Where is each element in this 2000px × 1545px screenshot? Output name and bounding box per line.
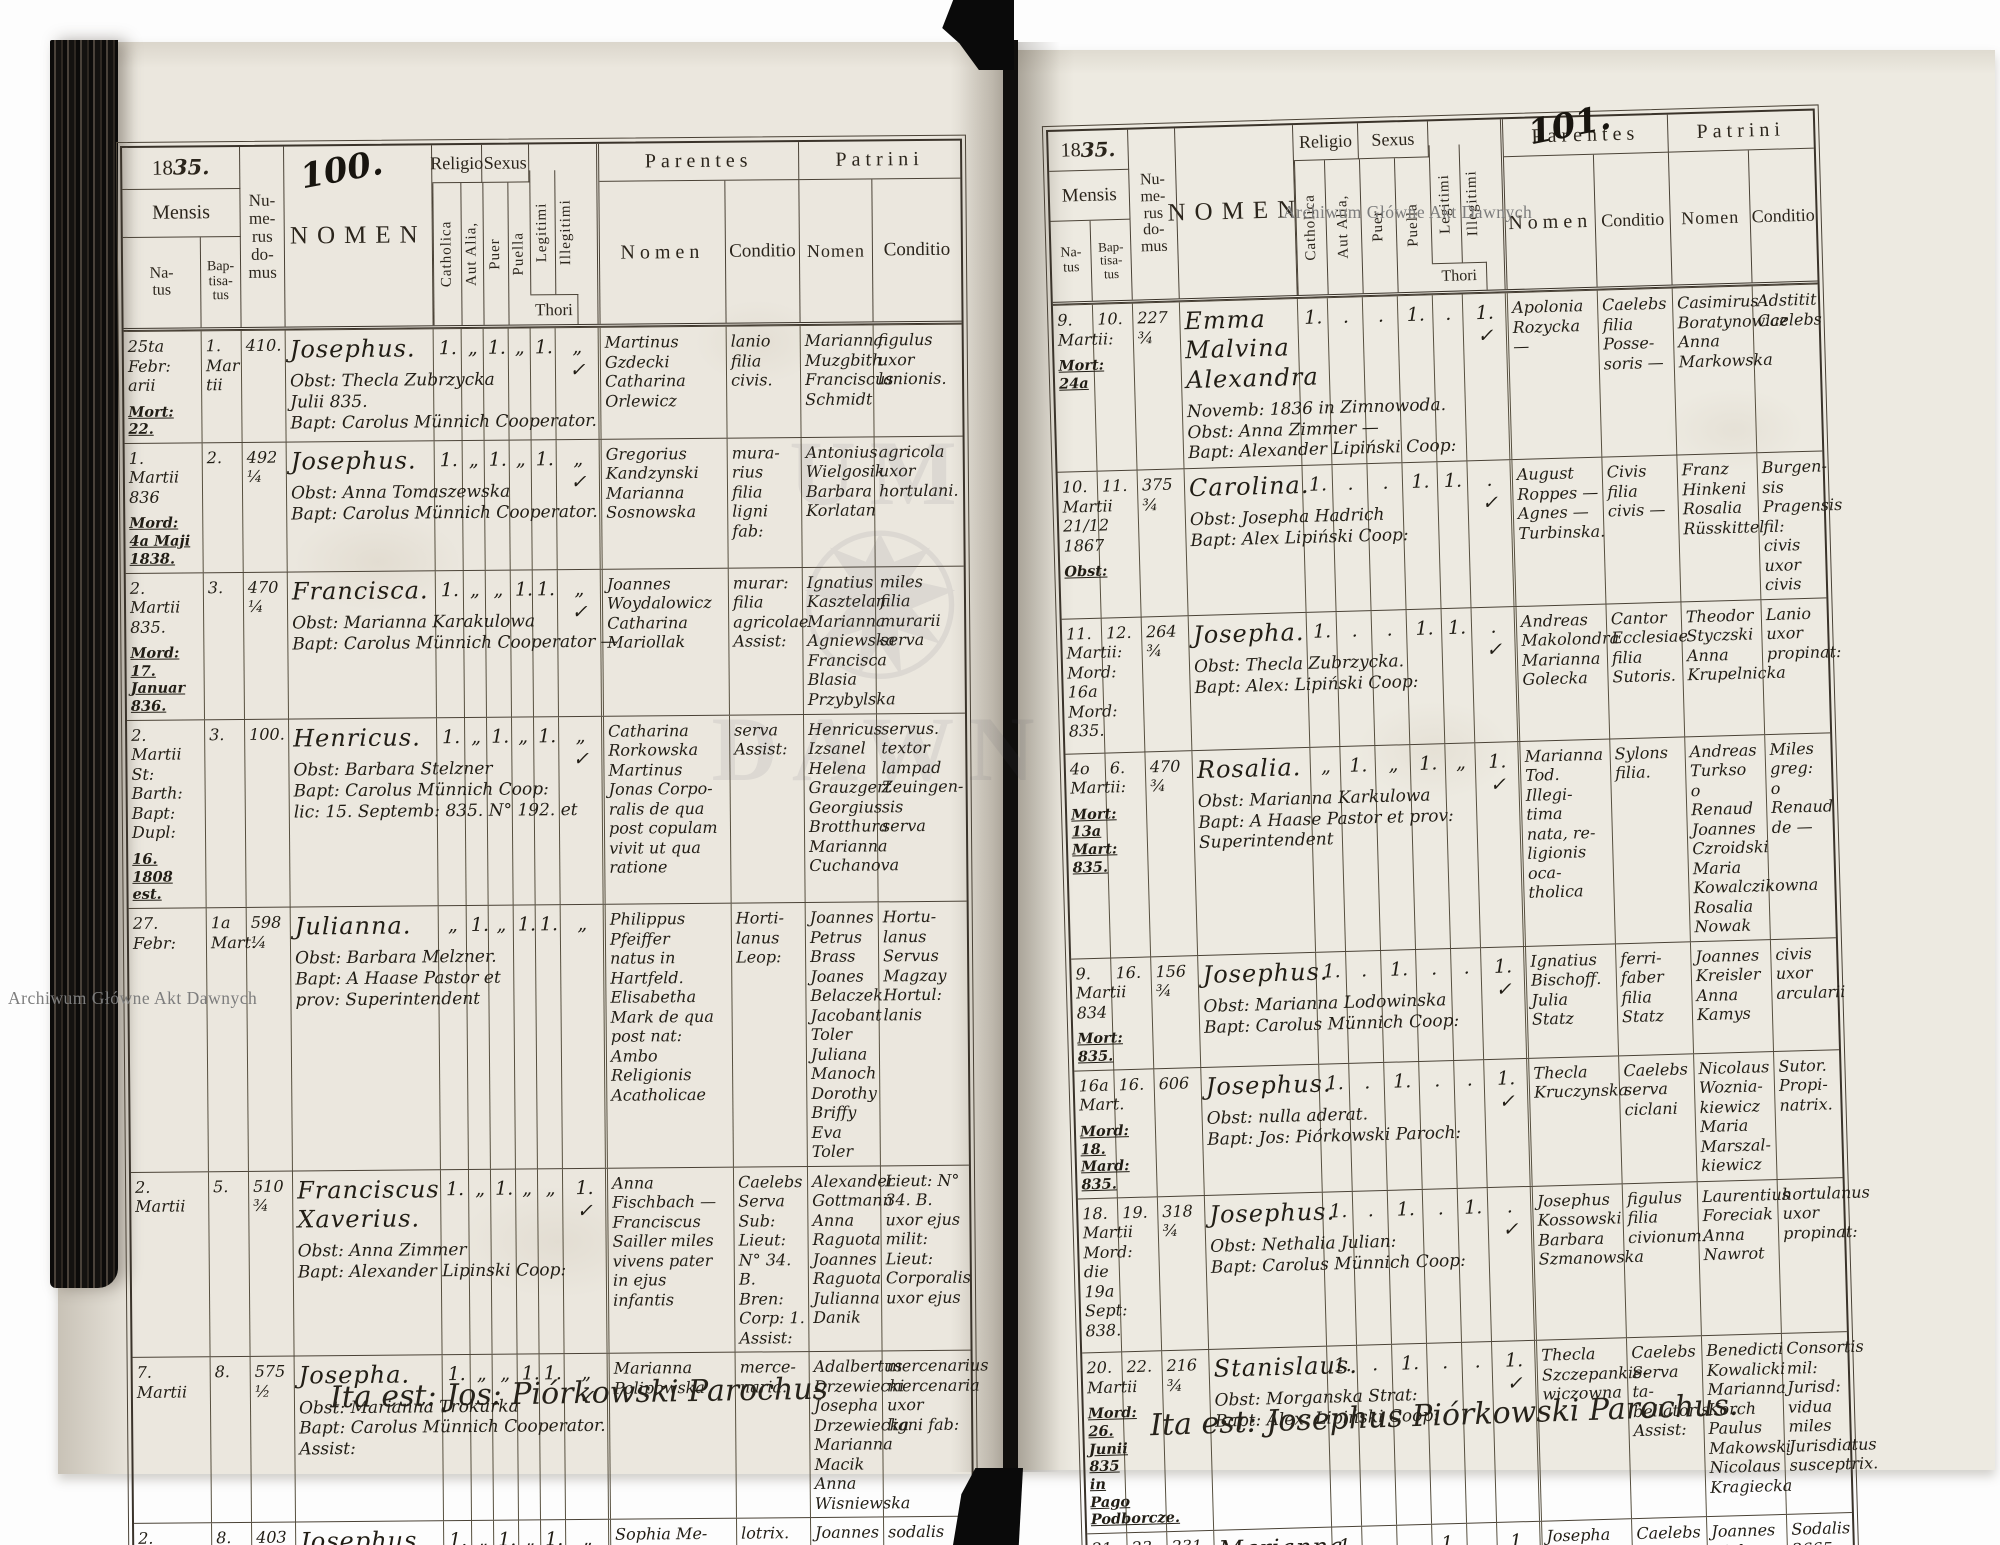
illegitimi-mark-cell: „ ✓ [566,1520,612,1545]
house-number-cell: 470 ¼ [244,572,289,719]
parents-name-cell: Josepha Cichanowska — Josephus Bernacki,… [1542,1519,1637,1545]
parents-condition-cell: Civis filia civis — [1602,455,1681,603]
parents-condition-cell: serva Assist: [730,715,806,903]
header-natus: Na- tus [1051,221,1093,302]
godparents-condition-cell: civis uxor arcularii [1771,938,1839,1051]
scanned-register-spread: UM DAWN 1835. Mensis Na- tus Bap- tisa- … [0,0,2000,1545]
header-sexus: Sexus [1358,121,1429,159]
godparents-name-cell: Henricus Izsanel Helena Grauzgert Georgi… [804,714,879,902]
midwife-baptizer-note: Obst: Marianna Karkulowa Bapt: A Haase P… [1198,789,1310,854]
header-baptisatus: Bap- tisa- tus [201,237,242,327]
baptisatus-date-cell: 8. [211,1357,252,1522]
header-sexus: Sexus [482,144,529,182]
natus-date-cell: 10. Martii 21/12 1867Obst: [1058,472,1102,619]
illegitimi-mark-cell: 1. ✓ [563,1168,610,1353]
godparents-condition-cell: Miles greg: o Renaud de — [1765,733,1836,939]
year-printed: 18 [1060,140,1081,162]
register-row: 18. Martii Mord: die 19a Sept: 838. 19. … [1078,1177,1847,1353]
right-register-table: 1835. Mensis Na- tus Bap- tisa- tus Nu- … [1046,109,1859,1545]
godparents-name-cell: Marianna Muzgbith Franciscus Schmidt [801,325,875,437]
baptisatus-date-cell: 23. [1127,1532,1172,1545]
godparents-condition-cell: Burgen- sis Pragensis fil: civis uxor ci… [1757,451,1826,598]
right-register-rows: 9. Martii:Mort: 24a 10. 227 ¾ Emma Malvi… [1053,284,1857,1545]
death-note: Mord: 4a Maji 1838. [129,515,199,569]
death-note [133,960,203,961]
child-name-cell: Carolina.Obst: Josepha Hadrich Bapt: Ale… [1185,466,1307,615]
parents-name-cell: Ignatius Bischoff. Julia Statz [1526,944,1619,1057]
natus-date-cell: 27. Febr: [129,908,209,1171]
register-row: 2. Martii 5. 510 ¾ Franciscus Xaverius.O… [131,1164,971,1357]
house-number-cell: 403 ¼ [252,1523,297,1545]
parents-condition-cell: ferri- faber filia Statz [1616,942,1694,1055]
child-name-cell: Rosalia.Obst: Marianna Karkulowa Bapt: A… [1192,748,1316,955]
book-fore-edge [50,40,118,1288]
register-row: 4o Martii:Mort: 13a Mart: 835. 6. 470 ¾ … [1065,732,1835,958]
death-note [1069,748,1101,749]
year-handwritten: 35. [1080,139,1115,161]
godparents-condition-cell: agricola uxor hortulani. [875,437,964,566]
register-row: 1. Martii 836Mord: 4a Maji 1838. 2. 492 … [125,436,964,573]
baptisatus-date-cell: 1. Mar tii [202,331,243,442]
register-row: 16a Mart.Mord: 18. Mard: 835. 16. 606 Jo… [1074,1049,1842,1198]
natus-date-cell: 7. Martii [133,1358,212,1524]
natus-date-cell: 9. Martii:Mort: 24a [1053,305,1098,472]
child-name-cell: Henricus.Obst: Barbara Stelzner Bapt: Ca… [289,718,439,906]
header-thori: Thori [1432,262,1488,292]
header-parentes-conditio: Conditio [1594,153,1673,287]
legitimi-mark-cell: 1. [541,1521,567,1545]
death-note: Obst: [1064,563,1096,582]
house-number-cell: 264 ¾ [1142,616,1193,751]
house-number-cell: 318 ¾ [1158,1196,1209,1351]
puer-mark-cell: 1. [494,1521,520,1545]
parents-condition-cell: Caelebs serva ciclani [1619,1054,1698,1183]
puella-mark-cell: 1. [514,905,538,1168]
header-puella: Puella [507,182,530,324]
header-natus: Na- tus [123,237,202,328]
legitimi-mark-cell: 1. [1437,461,1471,607]
header-puer: Puer [1359,158,1398,293]
puer-mark-cell: „ [1375,745,1416,950]
puella-mark-cell: 1. [1410,744,1451,949]
godparents-name-cell: Nicolaus Woznia- kiewicz Maria Marszal- … [1694,1052,1778,1181]
header-patrini-nomen: Nomen [1669,150,1753,284]
midwife-baptizer-note: Obst: Marianna Lodowinska Bapt: Carolus … [1203,994,1314,1039]
legitimi-mark-cell: 1. [1442,608,1476,743]
catholica-mark-cell: 1. [444,1521,473,1545]
natus-date-cell: 2. Martii St: Barth: Bapt: Dupl:16. 1808… [127,720,207,908]
year-handwritten: 35. [173,157,210,179]
illegitimi-mark-cell: . ✓ [1467,460,1516,607]
child-name-cell: Marianna Susanna.Obst: Barbara Metzales.… [1214,1528,1337,1545]
header-patrini-nomen: Nomen [799,179,873,322]
death-note [1086,1348,1118,1349]
register-row: 9. Martii 834Mort: 835. 16. 156 ¾ Joseph… [1071,937,1839,1070]
parents-name-cell: Thecla Szczepankie- wiczowna [1537,1338,1632,1520]
register-row: 9. Martii:Mort: 24a 10. 227 ¾ Emma Malvi… [1053,284,1822,472]
header-illegitimi: Illegitimi [554,170,578,294]
death-note: Mord: 26. Junii 835 in Pago Podborcze. [1088,1405,1123,1530]
aut-alia-mark-cell: „ [472,1521,495,1545]
bookmark-ribbon-middle [1003,40,1018,1474]
parents-name-cell: Joannes Woydalowicz Catharina Mariollak [603,568,730,715]
natus-date-cell: 9. Martii 834Mort: 835. [1071,958,1114,1070]
godparents-name-cell: Joannes Petrus Brass Joanes Belaczek Jac… [806,902,881,1165]
baptisatus-date-cell: 16. [1111,957,1154,1069]
legitimi-mark-cell: . [1451,948,1484,1060]
header-religio: Religio [1293,123,1359,161]
child-name-cell: Franciscus Xaverius.Obst: Anna Zimmer Ba… [293,1170,443,1356]
illegitimi-mark-cell: 1. ✓ [1492,1341,1542,1522]
puella-mark-cell: „ [519,1521,542,1545]
archive-watermark-top-right: Archiwum Główne Akt Dawnych [1283,202,1532,223]
register-row: 10. Martii 21/12 1867Obst: 11. 375 ¾ Car… [1058,450,1827,618]
baptisatus-date-cell: 16. [1114,1069,1158,1197]
header-aut-alia: Aut Alia, [1324,159,1363,294]
baptisatus-date-cell: 11. [1098,471,1142,618]
header-catholica: Catholica [1294,160,1328,295]
godparents-condition-cell: figulus uxor lanionis. [874,325,963,437]
godparents-condition-cell: Adstitit Caelebs [1753,285,1823,453]
godparents-condition-cell: hortulanus uxor propinat: [1778,1178,1847,1333]
header-nomen: NOMEN [1175,125,1298,298]
baptisatus-date-cell: 3. [204,572,245,719]
illegitimi-mark-cell: . ✓ [1472,607,1521,742]
death-note: Mort: 13a Mart: 835. [1071,805,1105,877]
puer-mark-cell: „ [489,906,516,1169]
parents-name-cell: Martinus Gzdecki Catharina Orlewicz [601,327,728,439]
godparents-name-cell: Antonius Wielgosik Barbara Korlatan [802,437,876,566]
baptisatus-date-cell: 5. [209,1172,251,1357]
child-name-cell: Josephus.Obst: nulla aderat. Bapt: Jos: … [1201,1065,1322,1195]
aut-alia-mark-cell: 1. [1340,746,1381,951]
parents-name-cell: Gregorius Kandzynski Marianna Sosnowska [602,439,729,569]
house-number-cell: 100. [245,719,291,907]
godparents-condition-cell: Sodalis 2665 Tabellator serva. [1787,1513,1857,1545]
parents-name-cell: Anna Fischbach — Franciscus Sailler mile… [608,1167,736,1353]
godparents-name-cell: Ignatius Kasztelan Marianna Agniewska Fr… [803,567,877,714]
midwife-baptizer-note: Obst: Nethalia Julian: Bapt: Carolus Mün… [1210,1234,1321,1279]
natus-date-cell: 21. Martii Mord: 21 Maji 836. in Zgnilow… [1087,1533,1132,1545]
baptisatus-date-cell: 12. [1102,617,1146,752]
midwife-baptizer-note: Obst: Thecla Zubrzycka. Bapt: Alex: Lipi… [1194,654,1305,699]
godparents-condition-cell: mercenarius mercenaria uxor ligni fab: [883,1351,972,1517]
year-printed: 18 [152,157,173,179]
illegitimi-mark-cell: 1. ✓ [1497,1522,1547,1545]
year-cell: 1835. [122,147,240,190]
child-name-cell: Josephus.Obst: Marianna Lodowinska Bapt:… [1198,953,1319,1067]
godparents-condition-cell: miles filia murarii serva [876,566,965,713]
midwife-baptizer-note: Obst: Barbara Melzner. Bapt: A Haase Pas… [295,948,436,1011]
godparents-condition-cell: servus. textor lampad Zeuingen- sis serv… [877,713,967,901]
death-note: Mort: 835. [1077,1030,1110,1066]
midwife-baptizer-note: Obst: Marianna Karakulowa Bapt: Carolus … [292,612,432,655]
death-note: Mort: 24a [1058,357,1091,393]
parents-name-cell: Catharina Rorkowska Martinus Jonas Corpo… [604,716,732,904]
illegitimi-mark-cell: „ [561,905,608,1168]
parents-name-cell: Apolonia Rozycka — [1508,291,1603,459]
parents-condition-cell: lotrix. [737,1518,812,1545]
house-number-cell: 598 ¼ [247,908,293,1171]
parents-name-cell: Philippus Pfeiffer natus in Hartfeld. El… [606,904,734,1168]
death-note [135,1224,205,1225]
header-puer: Puer [482,183,508,325]
child-name-cell: Josephus.Obst: Anna Tomaszewska Bapt: Ca… [287,441,436,571]
child-name-cell: Josephus.Obst: Nethalia Julian: Bapt: Ca… [1205,1192,1327,1349]
baptisatus-date-cell: 1a Mart. [207,908,249,1171]
header-catholica: Catholica [432,183,461,325]
header-religio: Religio [432,145,482,183]
house-number-cell: 470 ¾ [1145,751,1198,956]
godparents-condition-cell: Consortis mil: Jurisd: vidua miles Juris… [1782,1332,1852,1514]
natus-date-cell: 4o Martii:Mort: 13a Mart: 835. [1065,753,1111,958]
midwife-baptizer-note: Obst: Anna Zimmer Bapt: Alexander Lipins… [298,1240,438,1283]
natus-date-cell: 2. Martii [131,1172,211,1357]
child-name-cell: Francisca.Obst: Marianna Karakulowa Bapt… [288,571,437,719]
double-rule-gap [577,144,601,324]
death-note: 16. 1808 est. [132,850,202,904]
midwife-baptizer-note: Novemb: 1836 in Zimnowoda. Obst: Anna Zi… [1187,399,1299,464]
child-name-cell: Josepha.Obst: Thecla Zubrzycka. Bapt: Al… [1189,613,1311,750]
parents-condition-cell: Caelebs Serva Sub: Lieut: N° 34. B. Bren… [734,1167,810,1352]
header-baptisatus: Bap- tisa- tus [1091,220,1133,301]
header-numerus-domus: Nu- me- rus do- mus [240,147,286,327]
header-parentes: Parentes [599,142,799,182]
house-number-cell: 375 ¾ [1138,469,1189,616]
parents-name-cell: August Roppes — Agnes — Turbinska. [1512,458,1606,606]
natus-date-cell: 2. Martii 835.Mord: 17. Januar 836. [126,573,205,720]
illegitimi-mark-cell: 1. ✓ [1484,1059,1533,1187]
midwife-baptizer-note: Obst: Barbara Stelzner Bapt: Carolus Mün… [293,759,434,822]
godparents-name-cell: Joannes Bialr Moyses Josephus Kolani Cat… [1707,1515,1792,1545]
house-number-cell: 575 ½ [251,1357,296,1523]
left-register-table: 1835. Mensis Na- tus Bap- tisa- tus Nu- … [120,139,975,1545]
illegitimi-mark-cell: 1. ✓ [1463,293,1513,460]
death-note: Mort: 22. [128,403,198,439]
godparents-name-cell: Joannes Kreisler Anna Kamys [1691,940,1774,1053]
parents-condition-cell: Sylons filia. [1610,737,1691,943]
header-parentes-conditio: Conditio [725,180,800,323]
baptisatus-date-cell: 10. [1093,304,1138,471]
natus-date-cell: 11. Martii: Mord: 16a Mord: 835. [1062,618,1106,753]
midwife-baptizer-note: Obst: Josepha Hadrich Bapt: Alex Lipińsk… [1190,507,1301,552]
baptisatus-date-cell: 3. [205,720,247,907]
house-number-cell: 231 [1167,1531,1219,1545]
baptisatus-date-cell: 6. [1105,752,1151,957]
register-row: 2. Martii 835.Mord: 17. Januar 836. 3. 4… [126,565,965,720]
natus-date-cell: 25ta Febr: ariiMort: 22. [124,331,203,443]
death-note: Mord: 18. Mard: 835. [1080,1122,1114,1194]
parents-condition-cell: figulus filia civionum. [1623,1182,1702,1338]
house-number-cell: 156 ¾ [1151,956,1201,1068]
parents-condition-cell: Caelebs filia Posse- soris — [1598,289,1678,457]
year-cell: 1835. [1048,130,1129,172]
parents-name-cell: Thecla Kruczynska [1529,1056,1623,1185]
parents-condition-cell: Caelebs Hortulana. Sodalis famosus Assis… [1632,1517,1712,1545]
midwife-baptizer-note: Obst: Anna Tomaszewska Bapt: Carolus Mün… [291,482,431,525]
register-row: 11. Martii: Mord: 16a Mord: 835. 12. 264… [1062,597,1830,753]
header-patrini-conditio: Conditio [1749,149,1818,283]
parents-condition-cell: murar: filia agricolae Assist: [729,568,804,715]
parents-condition-cell: Cantor Ecclesiae filia Sutoris. [1606,602,1685,738]
legitimi-mark-cell: 1. [536,905,563,1168]
child-name-cell: Emma Malvina AlexandraNovemb: 1836 in Zi… [1180,299,1303,468]
godparents-condition-cell: Lieut: N° 34. B. uxor ejus milit: Lieut:… [881,1165,971,1350]
godparents-condition-cell: Lanio uxor propinat: [1761,598,1830,734]
header-patrini-conditio: Conditio [872,179,961,322]
child-name-cell: Josephus.Obst: Margaretha Osakowa Bapt: … [296,1522,445,1545]
house-number-cell: 510 ¾ [249,1171,295,1356]
child-name-cell: Julianna.Obst: Barbara Melzner. Bapt: A … [291,906,441,1170]
header-legitimi: Legitimi [529,170,555,294]
baptisatus-date-cell: 2. [203,443,244,572]
house-number-cell: 410. [242,331,287,442]
parents-name-cell: Andreas Makolondra Marianna Golecka [1516,604,1610,741]
child-name-cell: Josephus.Obst: Thecla Zubrzycka Julii 83… [286,329,435,441]
baptisatus-date-cell: 8. [212,1523,253,1545]
natus-date-cell: 16a Mart.Mord: 18. Mard: 835. [1074,1070,1118,1198]
godparents-name-cell: Theodor Styczski Anna Krupelnicka [1681,600,1765,736]
house-number-cell: 606 [1154,1068,1205,1196]
godparents-name-cell: Alexander Gottmann Anna Raguota Joannes … [808,1166,883,1351]
aut-alia-mark-cell: 1. [467,906,491,1169]
godparents-name-cell: Franz Hinkeni Rosalia Rüsskittel [1677,453,1761,601]
illegitimi-mark-cell: . ✓ [1488,1186,1537,1341]
register-row: 27. Febr: 1a Mart. 598 ¼ Julianna.Obst: … [129,901,969,1172]
natus-date-cell: 2. Martiimortuus die 15to Martii 835. [134,1524,213,1545]
godparents-condition-cell: Hortu- lanus Servus Magzay Hortul: lanis [879,902,969,1165]
header-patrini: Patrini [1668,111,1814,153]
godparents-condition-cell: Sutor. Propi- natrix. [1774,1050,1843,1179]
godparents-name-cell: Laurentius Foreciak Anna Nawrot [1698,1180,1782,1336]
parents-condition-cell: Horti- lanus Leop: [732,903,808,1166]
death-note: Mord: 17. Januar 836. [130,644,201,715]
godparents-name-cell: Casimirus Boratynowicz Anna Markowska [1673,286,1758,454]
header-mensis: Mensis [122,189,240,238]
house-number-cell: 492 ¼ [243,442,288,571]
header-thori: Thori [530,294,578,324]
natus-date-cell: 1. Martii 836Mord: 4a Maji 1838. [125,443,204,572]
illegitimi-mark-cell: 1. ✓ [1481,947,1529,1059]
death-note [137,1410,207,1411]
godparents-name-cell: Andreas Turkso o Renaud Joannes Czroidsk… [1685,735,1771,941]
house-number-cell: 227 ¾ [1133,302,1185,469]
parents-name-cell: Sophia Me- dylowska [611,1519,738,1545]
header-parentes-nomen: Nomen [599,181,726,324]
header-puella: Puella [1394,157,1433,292]
godparents-name-cell: Joannes Franciszek Marianna Anna Joannes… [811,1518,885,1545]
parents-name-cell: Marianna Tod. Illegi- tima nata, re- lig… [1520,739,1616,946]
register-row: 25ta Febr: ariiMort: 22. 1. Mar tii 410.… [124,324,963,443]
natus-date-cell: 20. MartiiMord: 26. Junii 835 in Pago Po… [1082,1353,1127,1534]
baptisatus-date-cell: 19. [1118,1197,1162,1352]
left-table-header: 1835. Mensis Na- tus Bap- tisa- tus Nu- … [122,141,962,331]
header-patrini: Patrini [799,141,960,180]
illegitimi-mark-cell: 1. ✓ [1475,742,1526,947]
godparents-name-cell: Benedicti Kowalicki Marianna Korch Paulu… [1702,1334,1787,1516]
midwife-baptizer-note: Obst: Thecla Zubrzycka Julii 835. Bapt: … [290,371,431,434]
header-mensis: Mensis [1049,170,1130,222]
archive-watermark-bottom-left: Archiwum Główne Akt Dawnych [8,988,257,1009]
left-register-rows: 25ta Febr: ariiMort: 22. 1. Mar tii 410.… [124,324,974,1545]
parents-name-cell: Josephus Kossowski Barbara Szmanowska [1533,1184,1627,1340]
catholica-mark-cell: „ [439,906,469,1169]
parents-condition-cell: lanio filia civis. [727,326,802,438]
register-row: 2. Martii St: Barth: Bapt: Dupl:16. 1808… [127,712,967,907]
midwife-baptizer-note: Obst: nulla aderat. Bapt: Jos: Piórkowsk… [1206,1106,1317,1151]
parents-condition-cell: mura- rius filia ligni fab: [728,438,803,567]
header-aut-alia: Aut Alia, [460,183,483,325]
natus-date-cell: 18. Martii Mord: die 19a Sept: 838. [1078,1198,1122,1353]
parents-condition-cell: Caelebs Serva ta- bellatoris Assist: [1627,1336,1707,1518]
